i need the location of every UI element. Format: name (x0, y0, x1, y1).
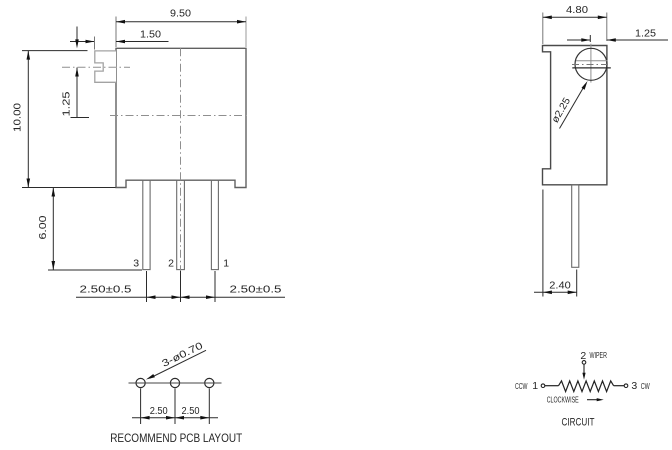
svg-text:2.40: 2.40 (549, 280, 571, 291)
svg-text:1: 1 (223, 257, 229, 269)
svg-text:10.00: 10.00 (12, 102, 23, 132)
svg-text:2.50: 2.50 (150, 406, 168, 417)
svg-text:3: 3 (133, 257, 139, 269)
svg-text:RECOMMEND PCB LAYOUT: RECOMMEND PCB LAYOUT (110, 431, 243, 445)
svg-text:2.50±0.5: 2.50±0.5 (80, 285, 133, 296)
svg-text:2: 2 (580, 350, 586, 362)
svg-text:CLOCKWISE: CLOCKWISE (547, 396, 579, 405)
svg-text:2.50±0.5: 2.50±0.5 (230, 285, 283, 296)
svg-text:6.00: 6.00 (38, 215, 49, 240)
svg-text:1.25: 1.25 (635, 28, 656, 39)
svg-text:4.80: 4.80 (566, 5, 588, 16)
svg-text:CCW: CCW (515, 382, 528, 391)
svg-text:CW: CW (641, 382, 650, 391)
svg-text:3: 3 (631, 380, 637, 392)
svg-text:WIPER: WIPER (589, 351, 607, 360)
svg-text:CIRCUIT: CIRCUIT (562, 417, 595, 429)
svg-text:1.50: 1.50 (140, 29, 161, 40)
svg-text:2: 2 (168, 257, 174, 269)
svg-text:9.50: 9.50 (170, 9, 191, 20)
svg-text:1: 1 (532, 380, 538, 392)
svg-text:1.25: 1.25 (61, 91, 72, 117)
svg-text:2.50: 2.50 (182, 406, 200, 417)
